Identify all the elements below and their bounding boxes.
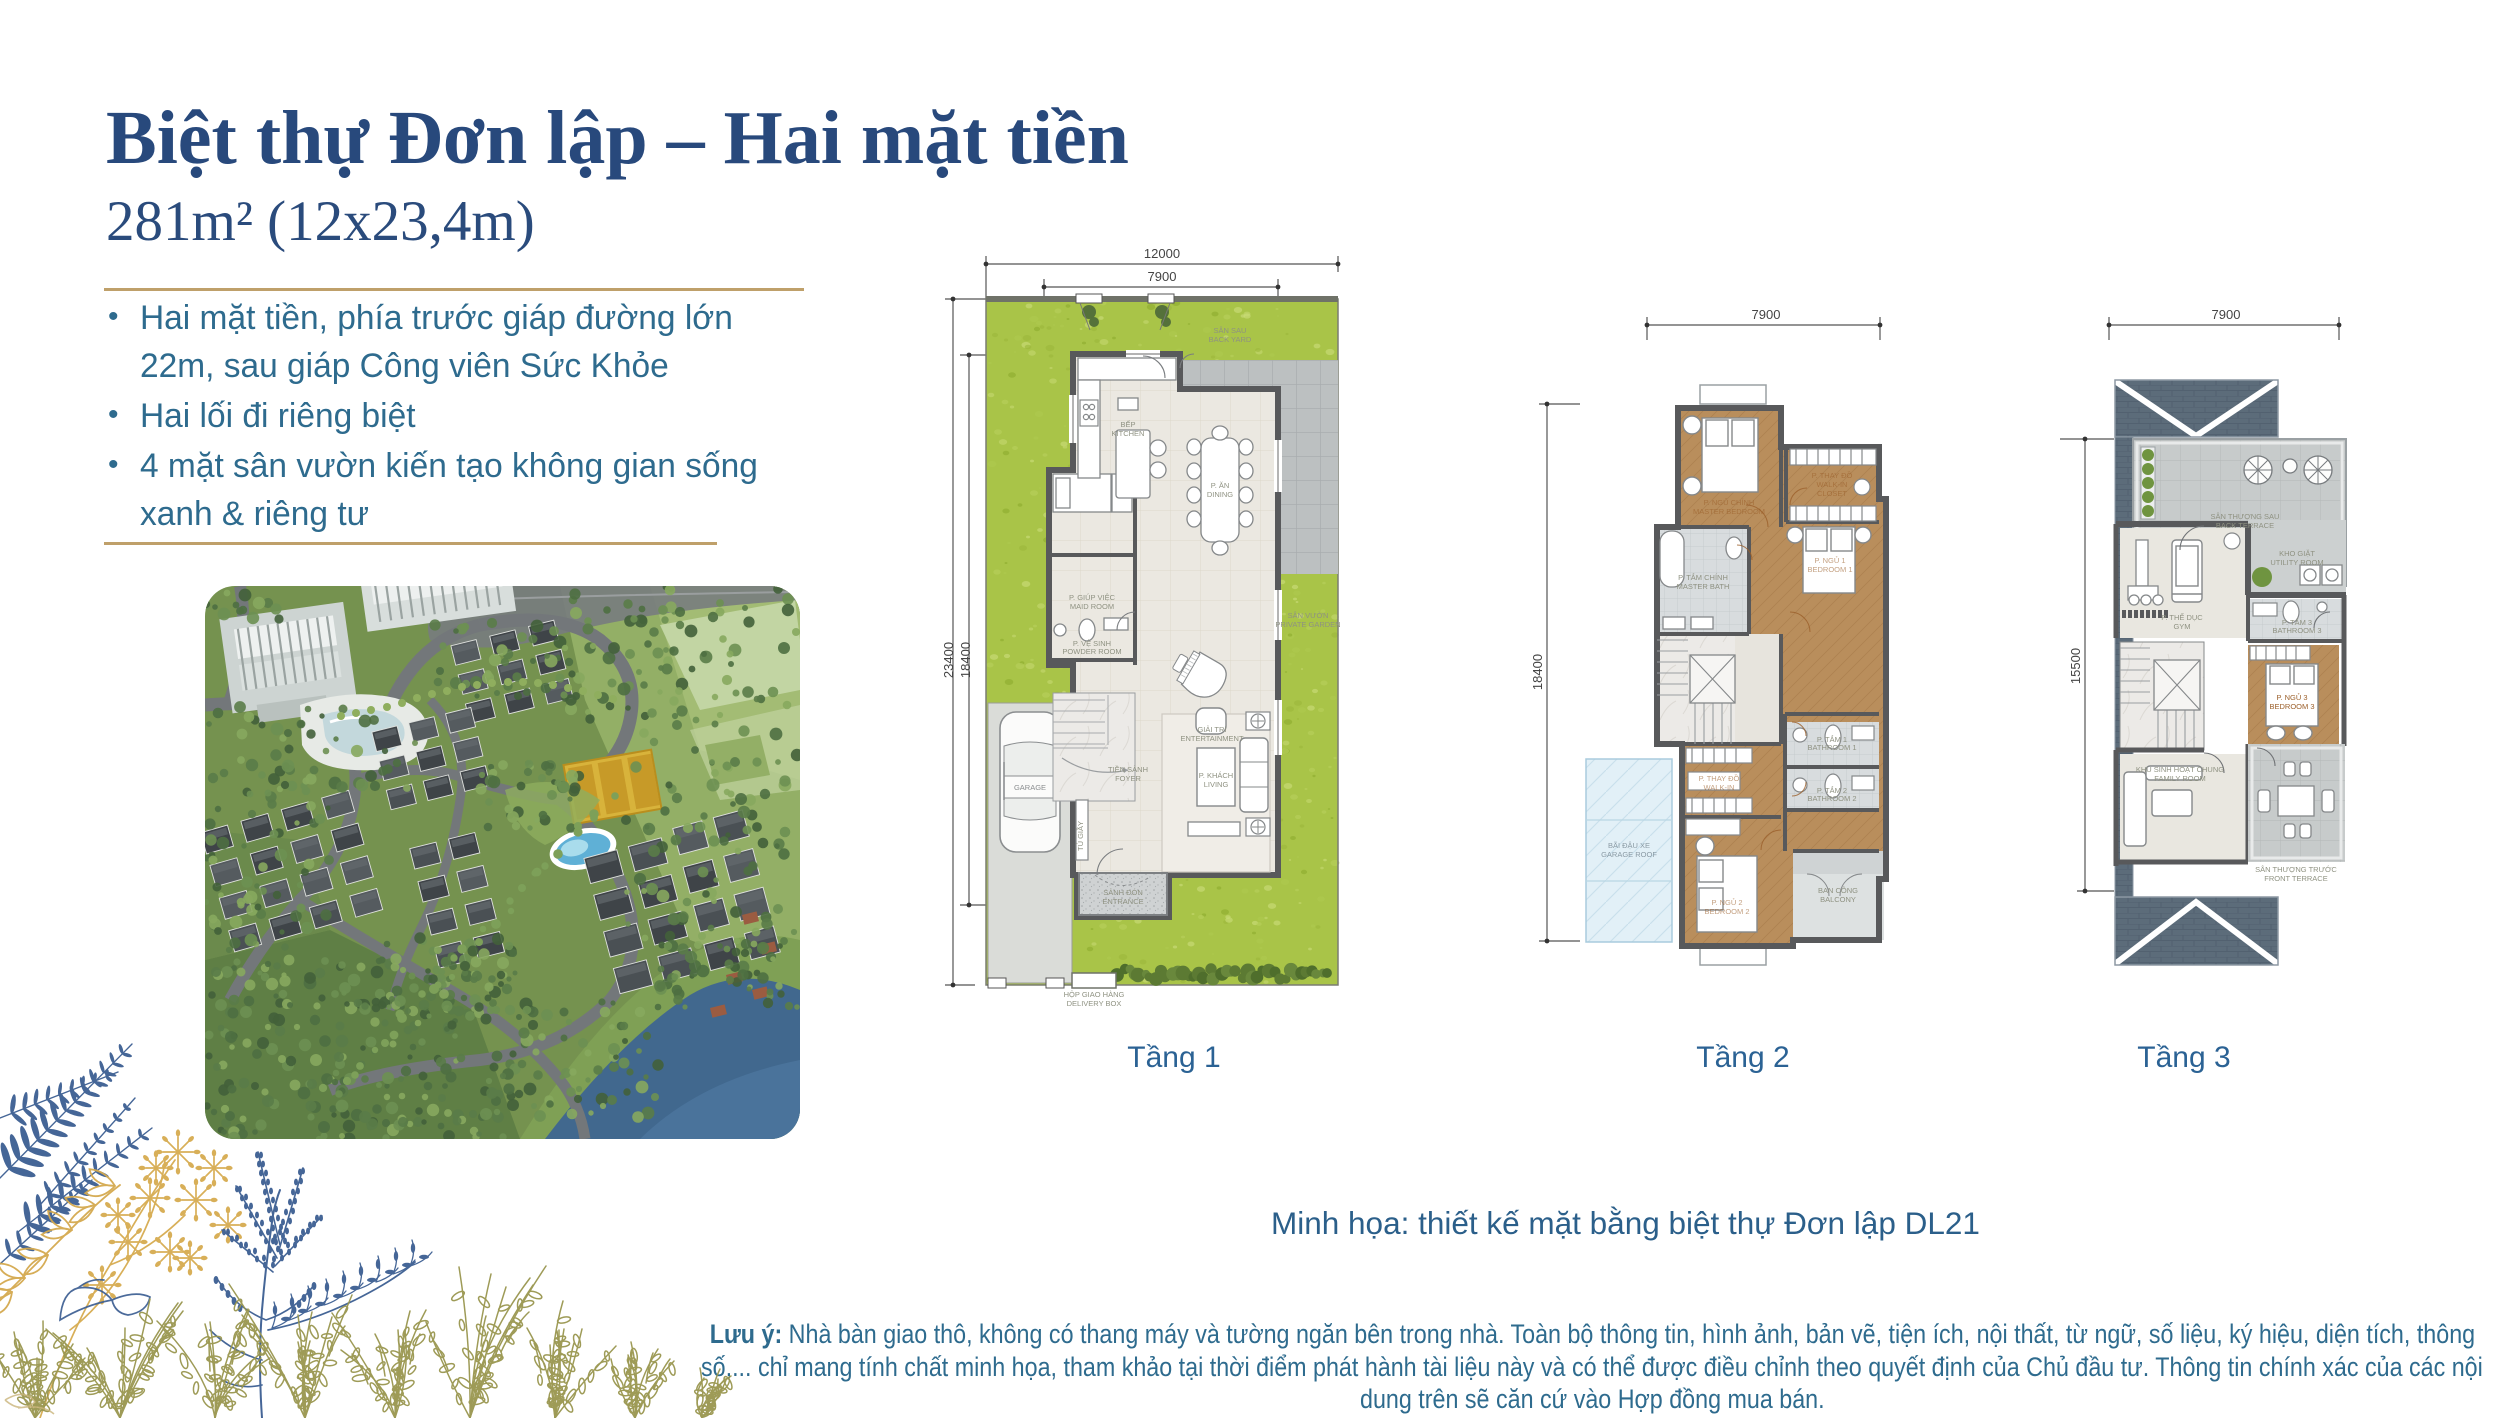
svg-text:BẾP: BẾP [1120, 419, 1135, 429]
svg-text:MAID ROOM: MAID ROOM [1070, 602, 1114, 611]
svg-text:BATHROOM 2: BATHROOM 2 [1807, 794, 1856, 803]
svg-text:HỘP GIAO HÀNG: HỘP GIAO HÀNG [1064, 990, 1125, 999]
svg-text:BATHROOM 1: BATHROOM 1 [1807, 743, 1856, 752]
svg-text:MASTER BATH: MASTER BATH [1677, 582, 1730, 591]
svg-text:SẢNH ĐÓN: SẢNH ĐÓN [1103, 888, 1143, 897]
svg-text:FRONT TERRACE: FRONT TERRACE [2264, 874, 2327, 883]
svg-text:BÃI ĐẬU XE: BÃI ĐẬU XE [1608, 841, 1650, 850]
svg-text:DINING: DINING [1207, 490, 1233, 499]
svg-text:P. THAY ĐỒ: P. THAY ĐỒ [1699, 773, 1740, 783]
svg-text:KHU SINH HOẠT CHUNG: KHU SINH HOẠT CHUNG [2136, 765, 2224, 774]
svg-text:LIVING: LIVING [1204, 780, 1229, 789]
svg-text:TỦ GIẦY: TỦ GIẦY [1075, 821, 1085, 851]
svg-text:P. GIÚP VIỆC: P. GIÚP VIỆC [1069, 593, 1116, 602]
svg-text:UTILITY ROOM: UTILITY ROOM [2270, 558, 2323, 567]
svg-text:BACK TERRACE: BACK TERRACE [2216, 521, 2274, 530]
svg-text:23400: 23400 [941, 642, 956, 678]
svg-text:18400: 18400 [1530, 654, 1545, 690]
svg-text:SÂN VƯỜN: SÂN VƯỜN [1288, 611, 1329, 620]
svg-text:SÂN THƯỢNG SAU: SÂN THƯỢNG SAU [2211, 512, 2280, 521]
svg-text:FOYER: FOYER [1115, 774, 1141, 783]
svg-text:P. THAY ĐỒ: P. THAY ĐỒ [1812, 470, 1853, 480]
svg-text:ENTERTAINMENT: ENTERTAINMENT [1180, 734, 1243, 743]
svg-text:7900: 7900 [1752, 307, 1781, 322]
svg-text:BEDROOM 2: BEDROOM 2 [1704, 907, 1749, 916]
svg-text:TIỀN SẢNH: TIỀN SẢNH [1108, 764, 1148, 774]
svg-text:BAN CÔNG: BAN CÔNG [1818, 886, 1858, 895]
svg-text:GIẢI TRÍ: GIẢI TRÍ [1197, 725, 1227, 734]
svg-text:P. NGỦ 1: P. NGỦ 1 [1814, 556, 1845, 565]
svg-text:CLOSET: CLOSET [1817, 489, 1847, 498]
svg-text:P. TẮM CHÍNH: P. TẮM CHÍNH [1678, 573, 1728, 582]
svg-text:GYM: GYM [2173, 622, 2190, 631]
svg-text:P. KHÁCH: P. KHÁCH [1199, 771, 1233, 780]
svg-text:18400: 18400 [958, 642, 973, 678]
svg-text:P. NGỦ 2: P. NGỦ 2 [1711, 898, 1742, 907]
svg-text:BEDROOM 1: BEDROOM 1 [1807, 565, 1852, 574]
svg-text:KITCHEN: KITCHEN [1112, 429, 1145, 438]
svg-text:P. NGỦ 3: P. NGỦ 3 [2276, 693, 2307, 702]
svg-text:15500: 15500 [2068, 648, 2083, 684]
svg-text:WALK-IN: WALK-IN [1704, 783, 1735, 792]
svg-text:P. NGỦ CHÍNH: P. NGỦ CHÍNH [1704, 498, 1755, 507]
svg-text:ENTRANCE: ENTRANCE [1102, 897, 1143, 906]
svg-text:BACK YARD: BACK YARD [1209, 335, 1252, 344]
svg-text:GARAGE: GARAGE [1014, 783, 1046, 792]
svg-text:BEDROOM 3: BEDROOM 3 [2269, 702, 2314, 711]
svg-text:DELIVERY BOX: DELIVERY BOX [1067, 999, 1122, 1008]
svg-text:P. THỂ DỤC: P. THỂ DỤC [2161, 613, 2203, 622]
svg-text:P. ĂN: P. ĂN [1211, 481, 1230, 490]
svg-text:GARAGE ROOF: GARAGE ROOF [1601, 850, 1657, 859]
svg-text:7900: 7900 [1148, 269, 1177, 284]
svg-text:7900: 7900 [2212, 307, 2241, 322]
svg-text:SÂN SAU: SÂN SAU [1214, 326, 1247, 335]
svg-text:BATHROOM 3: BATHROOM 3 [2272, 626, 2321, 635]
svg-text:12000: 12000 [1144, 246, 1180, 261]
svg-text:PRIVATE GARDEN: PRIVATE GARDEN [1275, 620, 1340, 629]
svg-text:SÂN THƯỢNG TRƯỚC: SÂN THƯỢNG TRƯỚC [2255, 865, 2337, 874]
svg-text:POWDER ROOM: POWDER ROOM [1062, 647, 1121, 656]
svg-text:BALCONY: BALCONY [1820, 895, 1856, 904]
svg-text:FAMILY ROOM: FAMILY ROOM [2154, 774, 2205, 783]
svg-text:MASTER BEDROOM: MASTER BEDROOM [1693, 507, 1765, 516]
svg-text:KHO GIẶT: KHO GIẶT [2279, 549, 2315, 558]
svg-text:WALK-IN: WALK-IN [1817, 480, 1848, 489]
